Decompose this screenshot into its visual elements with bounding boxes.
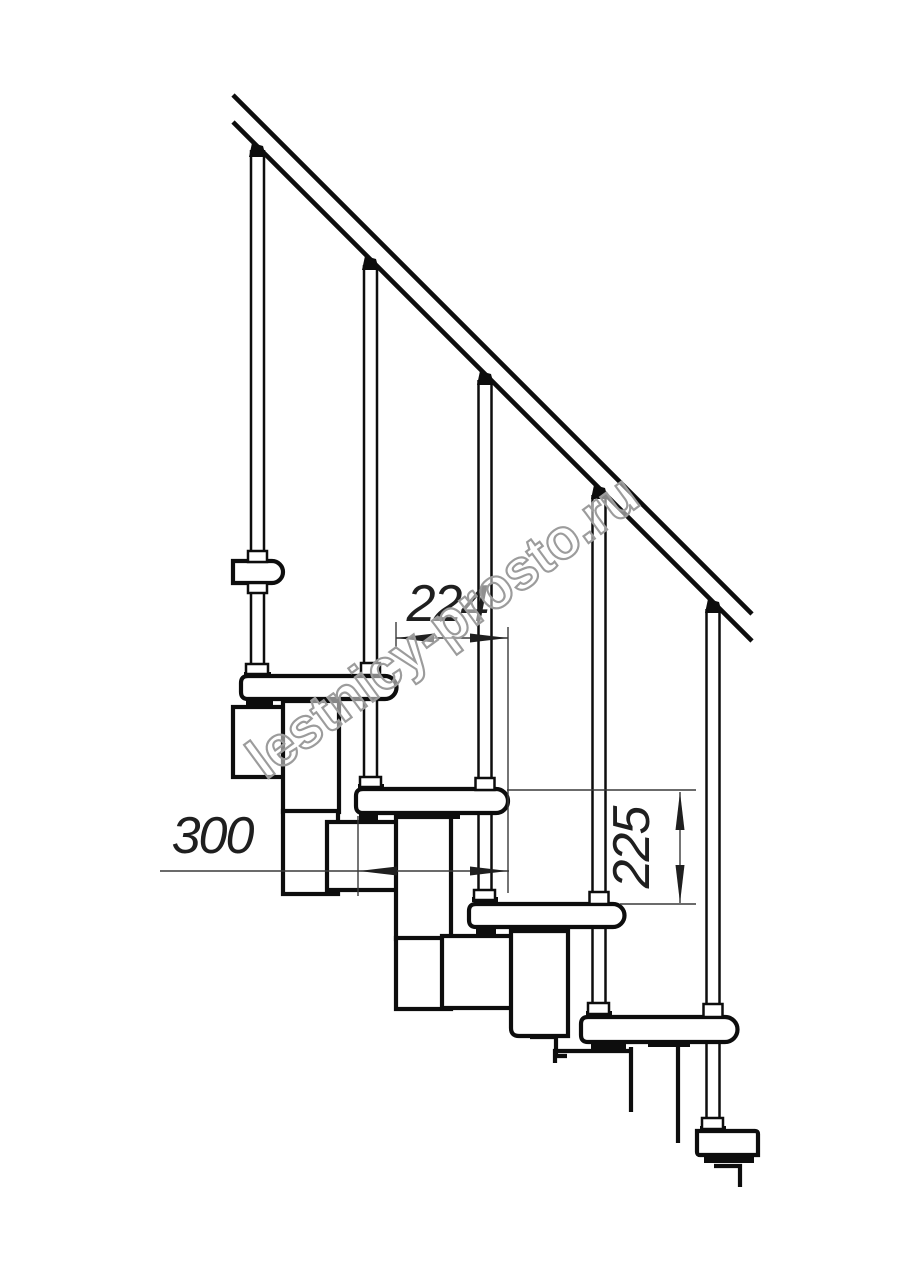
arrow-down	[676, 865, 685, 903]
staircase-drawing: 224 300 225 lestnicy-prosto.ru	[0, 0, 914, 1280]
module-square-2	[442, 936, 519, 1008]
module-column-3	[511, 931, 568, 1036]
watermark-text: lestnicy-prosto.ru	[235, 462, 650, 791]
module-cut-jog-1	[530, 1037, 567, 1056]
arrow-right	[470, 867, 508, 876]
module-column-4	[631, 1042, 678, 1143]
tread-floor	[697, 1131, 758, 1155]
tread-end-view-top	[233, 561, 283, 583]
arrow-up	[676, 792, 685, 830]
tread-3	[469, 904, 625, 927]
support-modules	[233, 701, 754, 1187]
dimension-value-rise: 225	[603, 805, 661, 890]
module-column-upper-2	[396, 817, 451, 939]
module-square-1	[327, 822, 404, 890]
tread-4	[581, 1017, 738, 1042]
dimension-rise-225: 225	[507, 790, 696, 904]
drawing-page: 224 300 225 lestnicy-prosto.ru	[0, 0, 914, 1280]
tread-2	[356, 789, 508, 813]
dimension-value-tread-depth: 300	[172, 807, 255, 865]
